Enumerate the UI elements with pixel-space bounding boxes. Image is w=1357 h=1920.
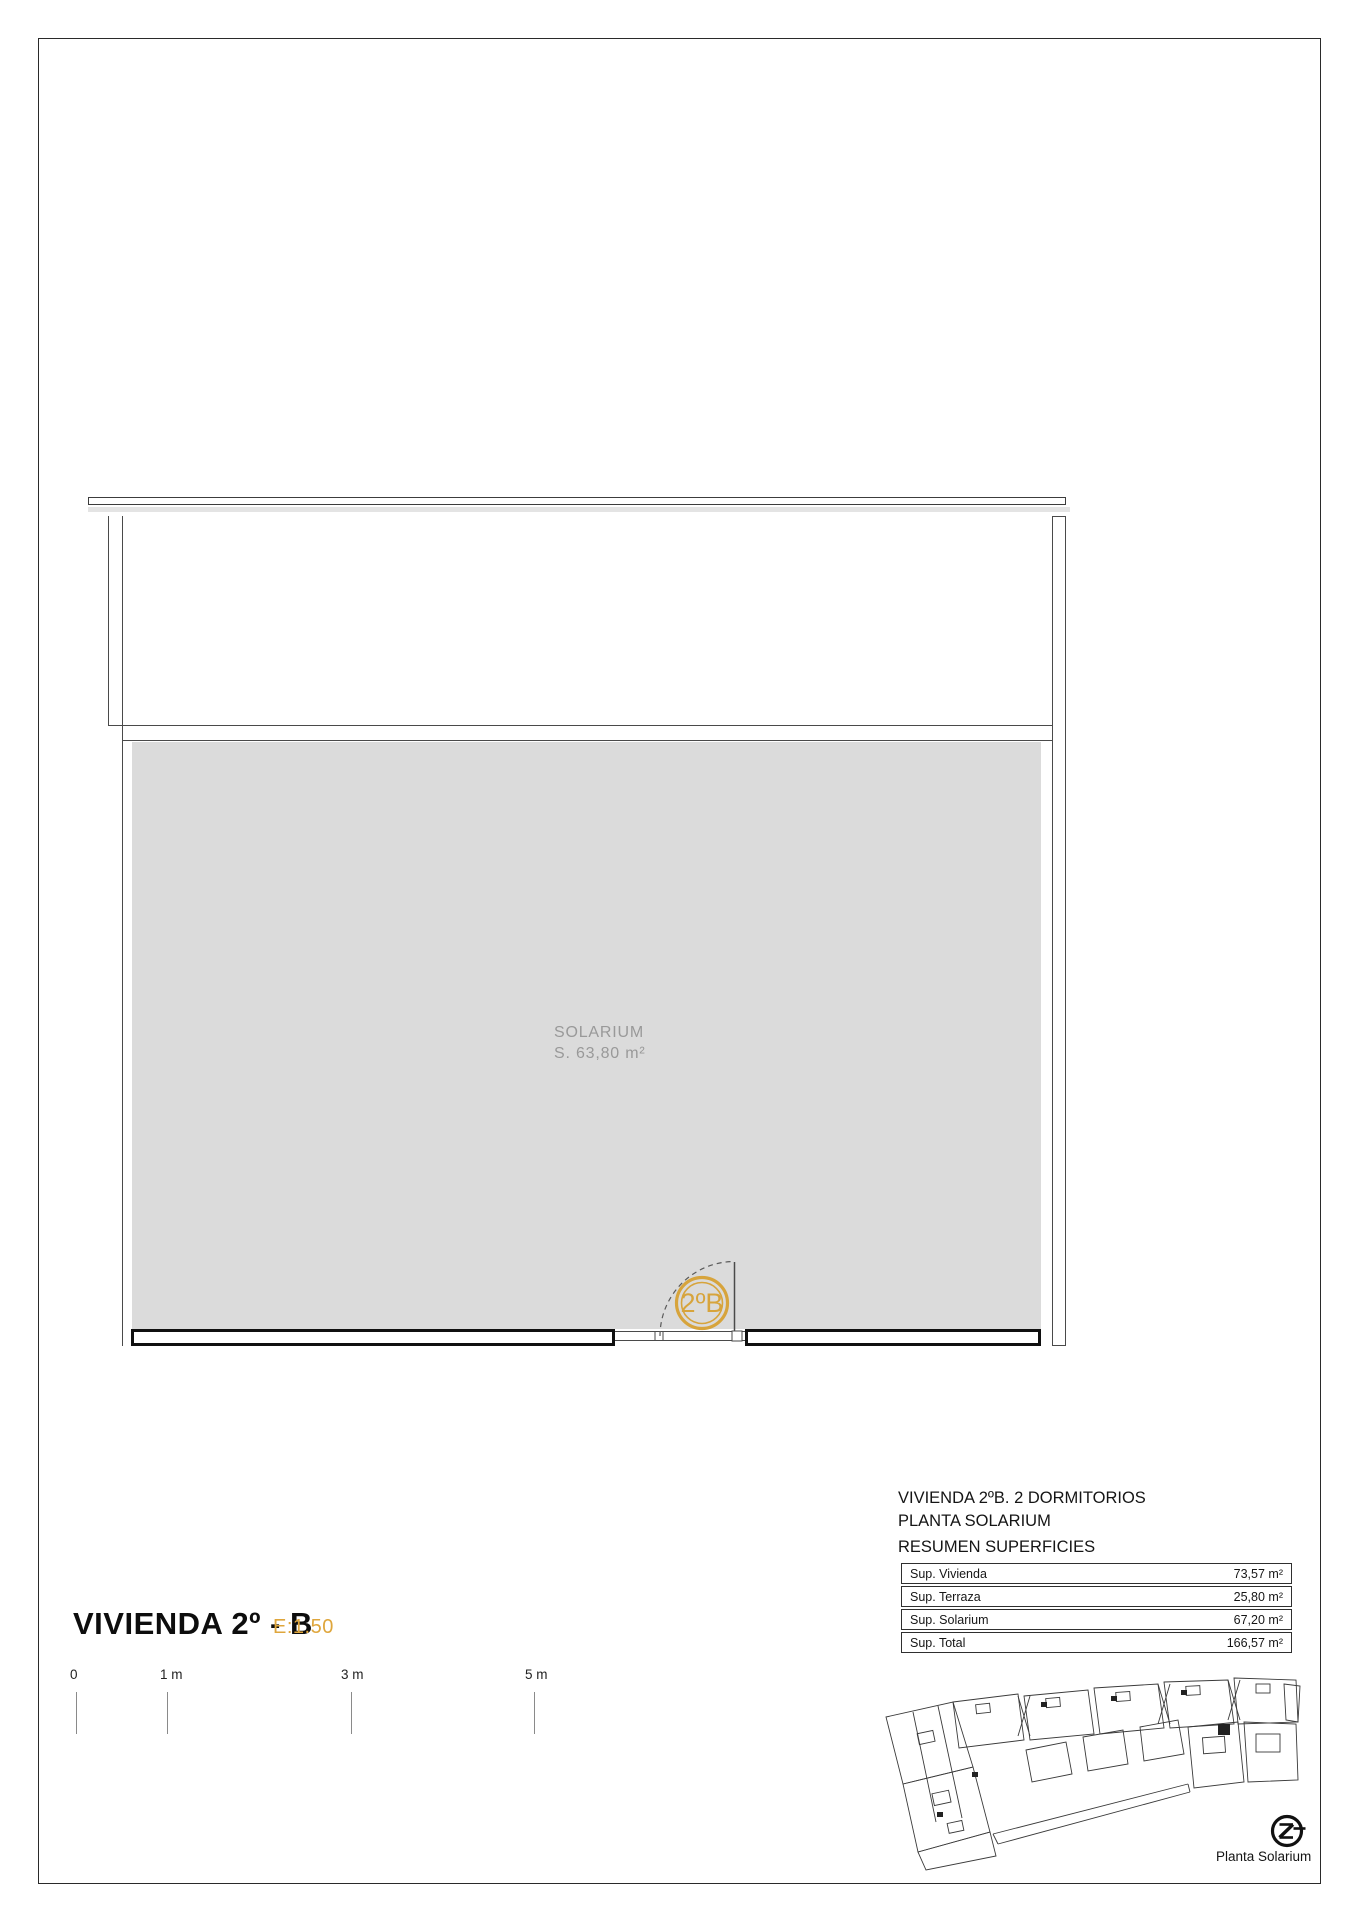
scale-tick-label: 5 m bbox=[525, 1667, 548, 1682]
room-name: SOLARIUM bbox=[554, 1022, 646, 1043]
table-row: Sup. Total 166,57 m² bbox=[901, 1632, 1292, 1653]
right-wall bbox=[1052, 516, 1066, 1346]
left-wall-inner-line bbox=[122, 516, 123, 1346]
key-plan-caption: Planta Solarium bbox=[1216, 1849, 1311, 1864]
summary-line3: RESUMEN SUPERFICIES bbox=[898, 1536, 1146, 1559]
summary-line2: PLANTA SOLARIUM bbox=[898, 1510, 1146, 1533]
unit-badge-label: 2ºB bbox=[681, 1288, 724, 1318]
scale-tick-label: 3 m bbox=[341, 1667, 364, 1682]
row-value: 73,57 m² bbox=[1234, 1567, 1283, 1581]
scale-tick-label: 0 bbox=[70, 1667, 78, 1682]
key-plan bbox=[878, 1672, 1303, 1872]
row-value: 25,80 m² bbox=[1234, 1590, 1283, 1604]
scale-tick bbox=[351, 1692, 352, 1734]
surface-summary-table: Sup. Vivienda 73,57 m² Sup. Terraza 25,8… bbox=[901, 1563, 1292, 1655]
table-row: Sup. Solarium 67,20 m² bbox=[901, 1609, 1292, 1630]
bottom-parapet-left bbox=[131, 1329, 615, 1346]
terrace-bottom-line bbox=[108, 725, 1052, 726]
row-label: Sup. Vivienda bbox=[910, 1567, 987, 1581]
row-value: 166,57 m² bbox=[1227, 1636, 1283, 1650]
entrance-door-group: 2ºB bbox=[600, 1230, 800, 1360]
drawing-sheet: { "plan": { "room_label": "SOLARIUM", "r… bbox=[0, 0, 1357, 1920]
door-hinge-block bbox=[732, 1331, 742, 1341]
sheet-scale: E:1.50 bbox=[273, 1616, 334, 1639]
table-row: Sup. Vivienda 73,57 m² bbox=[901, 1563, 1292, 1584]
scale-tick bbox=[167, 1692, 168, 1734]
current-unit-marker bbox=[1218, 1724, 1230, 1735]
left-wall-outer-line bbox=[108, 516, 109, 725]
row-label: Sup. Total bbox=[910, 1636, 965, 1650]
room-label-block: SOLARIUM S. 63,80 m² bbox=[554, 1022, 646, 1064]
terrace-railing bbox=[88, 497, 1066, 505]
summary-line1: VIVIENDA 2ºB. 2 DORMITORIOS bbox=[898, 1487, 1146, 1510]
row-label: Sup. Solarium bbox=[910, 1613, 989, 1627]
table-row: Sup. Terraza 25,80 m² bbox=[901, 1586, 1292, 1607]
scale-tick bbox=[534, 1692, 535, 1734]
scale-tick-label: 1 m bbox=[160, 1667, 183, 1682]
scale-tick bbox=[76, 1692, 77, 1734]
row-label: Sup. Terraza bbox=[910, 1590, 981, 1604]
summary-header: VIVIENDA 2ºB. 2 DORMITORIOS PLANTA SOLAR… bbox=[898, 1487, 1146, 1559]
terrace-railing-shadow bbox=[88, 507, 1070, 512]
room-area: S. 63,80 m² bbox=[554, 1043, 646, 1064]
row-value: 67,20 m² bbox=[1234, 1613, 1283, 1627]
